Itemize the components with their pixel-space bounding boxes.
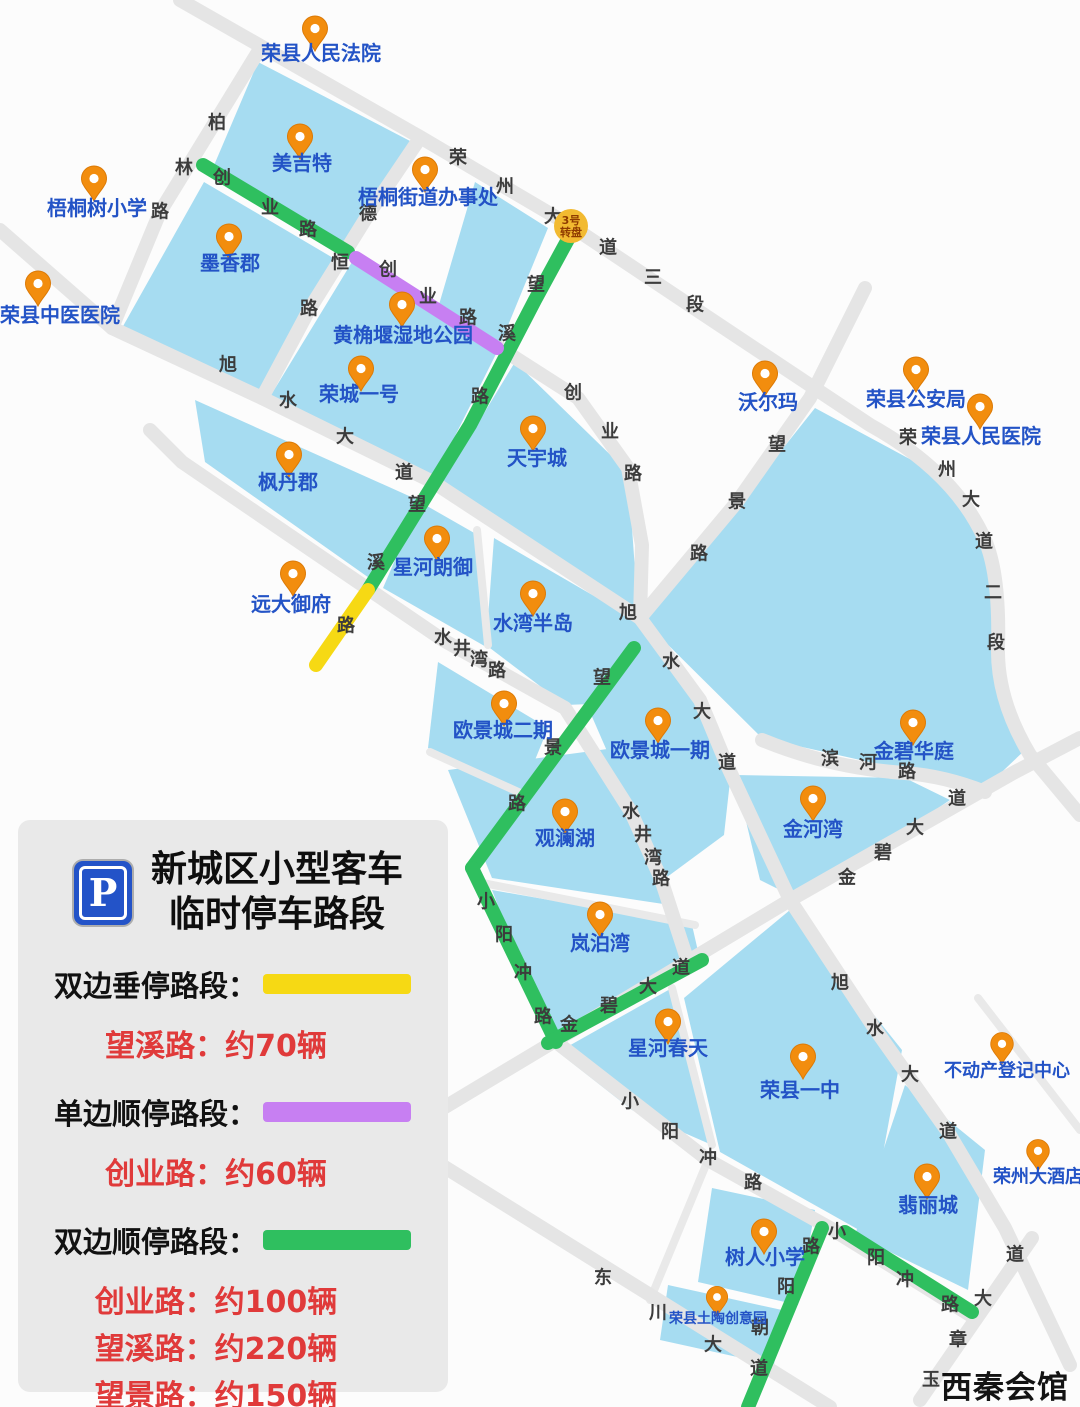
city-block [684,910,902,1235]
legend-color-bar [263,1102,411,1122]
pin-dot-icon [432,534,441,543]
road-name-char: 林 [175,157,193,179]
road-name-char: 湾 [644,847,662,869]
road-name-char: 望 [527,274,545,296]
road-name-char: 大 [639,976,657,998]
road-name-char: 冲 [896,1269,914,1291]
legend-rows: 双边垂停路段：望溪路：约70辆单边顺停路段：创业路：约60辆双边顺停路段：创业路… [18,963,448,1407]
road-name-char: 井 [453,638,471,660]
road-name-char: 路 [690,543,709,565]
road-name-char: 创 [212,167,231,189]
pin-dot-icon [922,1172,931,1181]
pin-dot-icon [1034,1147,1042,1155]
road-name-char: 小 [477,892,495,913]
road-name-char: 大 [901,1064,919,1086]
pin-dot-icon [760,369,769,378]
legend-header: P 新城区小型客车 临时停车路段 [18,820,448,937]
road-name-char: 大 [962,489,980,511]
road-name-char: 井 [634,824,652,846]
road-name-char: 章 [949,1329,967,1351]
legend-color-bar [263,1230,411,1250]
pin-dot-icon [295,132,304,141]
place-label: 星河春天 [628,1036,709,1060]
road-name-char: 大 [906,817,924,839]
road-name-char: 柏 [208,112,226,134]
road-name-char: 段 [686,294,705,316]
parking-sign-icon: P [74,861,132,925]
road-name-char: 路 [488,660,507,682]
legend-entry: 望溪路：约220辆 [18,1324,448,1368]
place-label: 黄桷堰湿地公园 [333,323,473,347]
road-name-char: 溪 [367,553,386,574]
watermark-part2: 会馆 [1005,1370,1069,1406]
place-label: 梧桐街道办事处 [358,185,499,209]
road-name-char: 水 [866,1018,885,1040]
legend-title: 新城区小型客车 临时停车路段 [132,848,422,937]
road-name-char: 荣 [448,147,468,169]
road-name-char: 水 [434,627,453,649]
legend-color-bar [263,974,411,994]
road-name-char: 碧 [873,842,892,864]
road-name-char: 旭 [830,972,849,994]
pin-dot-icon [798,1052,807,1061]
road-name-char: 金 [837,867,857,889]
place-label: 远大御府 [251,592,331,616]
pin-dot-icon [595,910,604,919]
road-name-char: 水 [279,390,298,412]
legend-row-label: 单边顺停路段： [54,1091,257,1133]
parking-map-page: 荣州大道三段荣州大道二段柏林路德恒路创业路创业路创业路望溪路望溪路旭水大道旭水大… [0,0,1080,1407]
road-name-char: 川 [648,1303,667,1324]
road-name-char: 阳 [661,1122,679,1143]
road-name-char: 大 [704,1334,722,1356]
road-name-char: 小 [621,1092,639,1113]
road-name-char: 大 [693,701,711,723]
pin-dot-icon [808,794,817,803]
road-name-char: 路 [300,298,319,320]
road-name-char: 路 [471,386,490,408]
place-label: 荣县一中 [759,1078,840,1102]
pin-dot-icon [560,807,569,816]
legend-row-header: 单边顺停路段： [18,1091,448,1133]
road-name-char: 小 [828,1222,846,1243]
road-name-char: 冲 [699,1147,717,1169]
pin-dot-icon [528,424,537,433]
place-label: 树人小学 [725,1245,805,1269]
road-name-char: 道 [975,531,993,553]
legend-row-header: 双边顺停路段： [18,1219,448,1261]
road-name-char: 业 [261,198,279,219]
place-label: 美吉特 [272,151,332,175]
road-name-char: 业 [601,422,619,443]
place-label: 荣县人民法院 [260,41,381,65]
road-name-char: 路 [898,761,917,783]
place-label: 星河朗御 [393,555,473,579]
place-label: 金碧华庭 [873,739,954,763]
pin-dot-icon [998,1040,1006,1048]
road-name-char: 滨 [821,748,839,770]
road-name-char: 业 [419,287,437,308]
pin-dot-icon [288,569,297,578]
place-label: 梧桐树小学 [47,196,147,220]
road-name-char: 恒 [331,252,349,274]
road-name-char: 望 [768,434,786,456]
roundabout-3-badge: 3号 转盘 [554,209,588,243]
road-name-char: 创 [378,259,397,281]
legend-row-label: 双边垂停路段： [54,963,257,1005]
place-label: 岚泊湾 [570,931,630,955]
pin-dot-icon [224,232,233,241]
place-label: 荣县中医医院 [0,303,120,327]
pin-dot-icon [89,174,98,183]
legend-row-header: 双边垂停路段： [18,963,448,1005]
pin-dot-icon [759,1227,768,1236]
road-name-char: 阳 [777,1277,795,1298]
place-label: 观澜湖 [535,826,595,850]
road-name-char: 望 [408,494,426,516]
legend-entry: 创业路：约100辆 [18,1277,448,1321]
road-name-char: 水 [662,651,681,673]
road-name-char: 溪 [498,324,517,345]
place-label: 荣县土陶创意园 [668,1310,767,1327]
parking-sign-letter: P [89,874,118,912]
road-name-char: 路 [299,219,318,241]
place-label: 水湾半岛 [493,611,573,635]
road-name-char: 水 [622,801,641,823]
road-name-char: 路 [941,1294,960,1316]
road-name-char: 段 [987,632,1006,654]
place-label: 沃尔玛 [738,390,798,414]
legend-entry: 创业路：约60辆 [18,1149,448,1193]
road-name-char: 大 [974,1288,992,1310]
place-label: 金河湾 [782,817,843,841]
road-name-char: 路 [534,1006,553,1028]
pin-marker-icon [26,271,51,306]
road-name-char: 景 [728,492,746,513]
pin-dot-icon [908,718,917,727]
road-name-char: 路 [508,793,527,815]
road-name-char: 阳 [495,925,513,946]
road-name-char: 路 [652,868,671,890]
road-name-char: 荣 [898,427,918,449]
pin-dot-icon [284,450,293,459]
road-name-char: 道 [672,957,690,979]
place-label: 墨香郡 [200,251,260,275]
place-label: 翡丽城 [898,1193,958,1217]
legend-entry: 望溪路：约70辆 [18,1021,448,1065]
road-name-char: 道 [718,752,736,774]
pin-dot-icon [911,365,920,374]
map-pin[interactable] [281,561,306,596]
road-name-char: 大 [336,426,354,448]
road-name-char: 旭 [218,354,237,376]
road-name-char: 道 [750,1358,768,1380]
legend-entry: 望景路：约150辆 [18,1371,448,1407]
pin-marker-icon [991,1033,1014,1065]
road-name-char: 冲 [514,962,532,984]
road-name-char: 二 [984,583,1002,604]
place-label: 欧景城一期 [610,738,710,762]
road-name-char: 路 [624,463,643,485]
road-name-char: 路 [151,201,170,223]
pin-dot-icon [33,279,42,288]
road-name-char: 旭 [618,602,637,624]
pin-dot-icon [310,24,319,33]
road-name-char: 道 [939,1121,957,1143]
road-name-char: 路 [337,615,356,637]
road-name-char: 碧 [599,995,618,1017]
place-label: 枫丹郡 [258,470,318,494]
roundabout-label-line2: 转盘 [560,225,582,239]
legend-title-line2: 临时停车路段 [132,893,422,938]
road-name-char: 道 [599,237,617,259]
legend-row-label: 双边顺停路段： [54,1219,257,1261]
map-pin[interactable] [26,271,51,306]
place-label: 天宇城 [507,446,567,470]
road-name-char: 金 [559,1014,579,1036]
pin-dot-icon [713,1293,721,1301]
place-label: 荣县公安局 [865,387,966,411]
pin-dot-icon [397,300,406,309]
pin-dot-icon [499,699,508,708]
watermark: 西秦会馆 [941,1362,1069,1407]
place-label: 不动产登记中心 [944,1060,1070,1082]
road-name-char: 路 [744,1172,763,1194]
legend-panel: P 新城区小型客车 临时停车路段 双边垂停路段：望溪路：约70辆单边顺停路段：创… [18,820,448,1392]
pin-dot-icon [975,402,984,411]
pin-dot-icon [653,716,662,725]
road-name-char: 三 [644,268,662,289]
pin-marker-icon [281,561,306,596]
place-label: 荣城一号 [318,382,399,406]
road-name-char: 创 [563,382,582,404]
pin-dot-icon [663,1017,672,1026]
road-name-char: 阳 [867,1248,885,1269]
parking-sign-inner: P [79,866,127,920]
road-name-char: 道 [395,462,413,484]
pin-dot-icon [420,165,429,174]
legend-title-line1: 新城区小型客车 [132,848,422,893]
road-name-char: 州 [937,460,956,481]
place-label: 荣州大酒店 [992,1166,1080,1188]
road-name-char: 东 [594,1267,612,1289]
map-pin[interactable] [991,1033,1014,1065]
road-name-char: 望 [593,667,611,689]
place-label: 欧景城二期 [453,718,553,742]
pin-dot-icon [528,589,537,598]
road-name-char: 道 [948,788,966,810]
road-name-char: 道 [1006,1244,1024,1266]
watermark-part1: 西秦 [941,1370,1005,1406]
place-label: 荣县人民医院 [920,424,1041,448]
road-name-char: 湾 [470,649,488,671]
road-name-char: 玉 [922,1370,940,1391]
pin-dot-icon [356,364,365,373]
